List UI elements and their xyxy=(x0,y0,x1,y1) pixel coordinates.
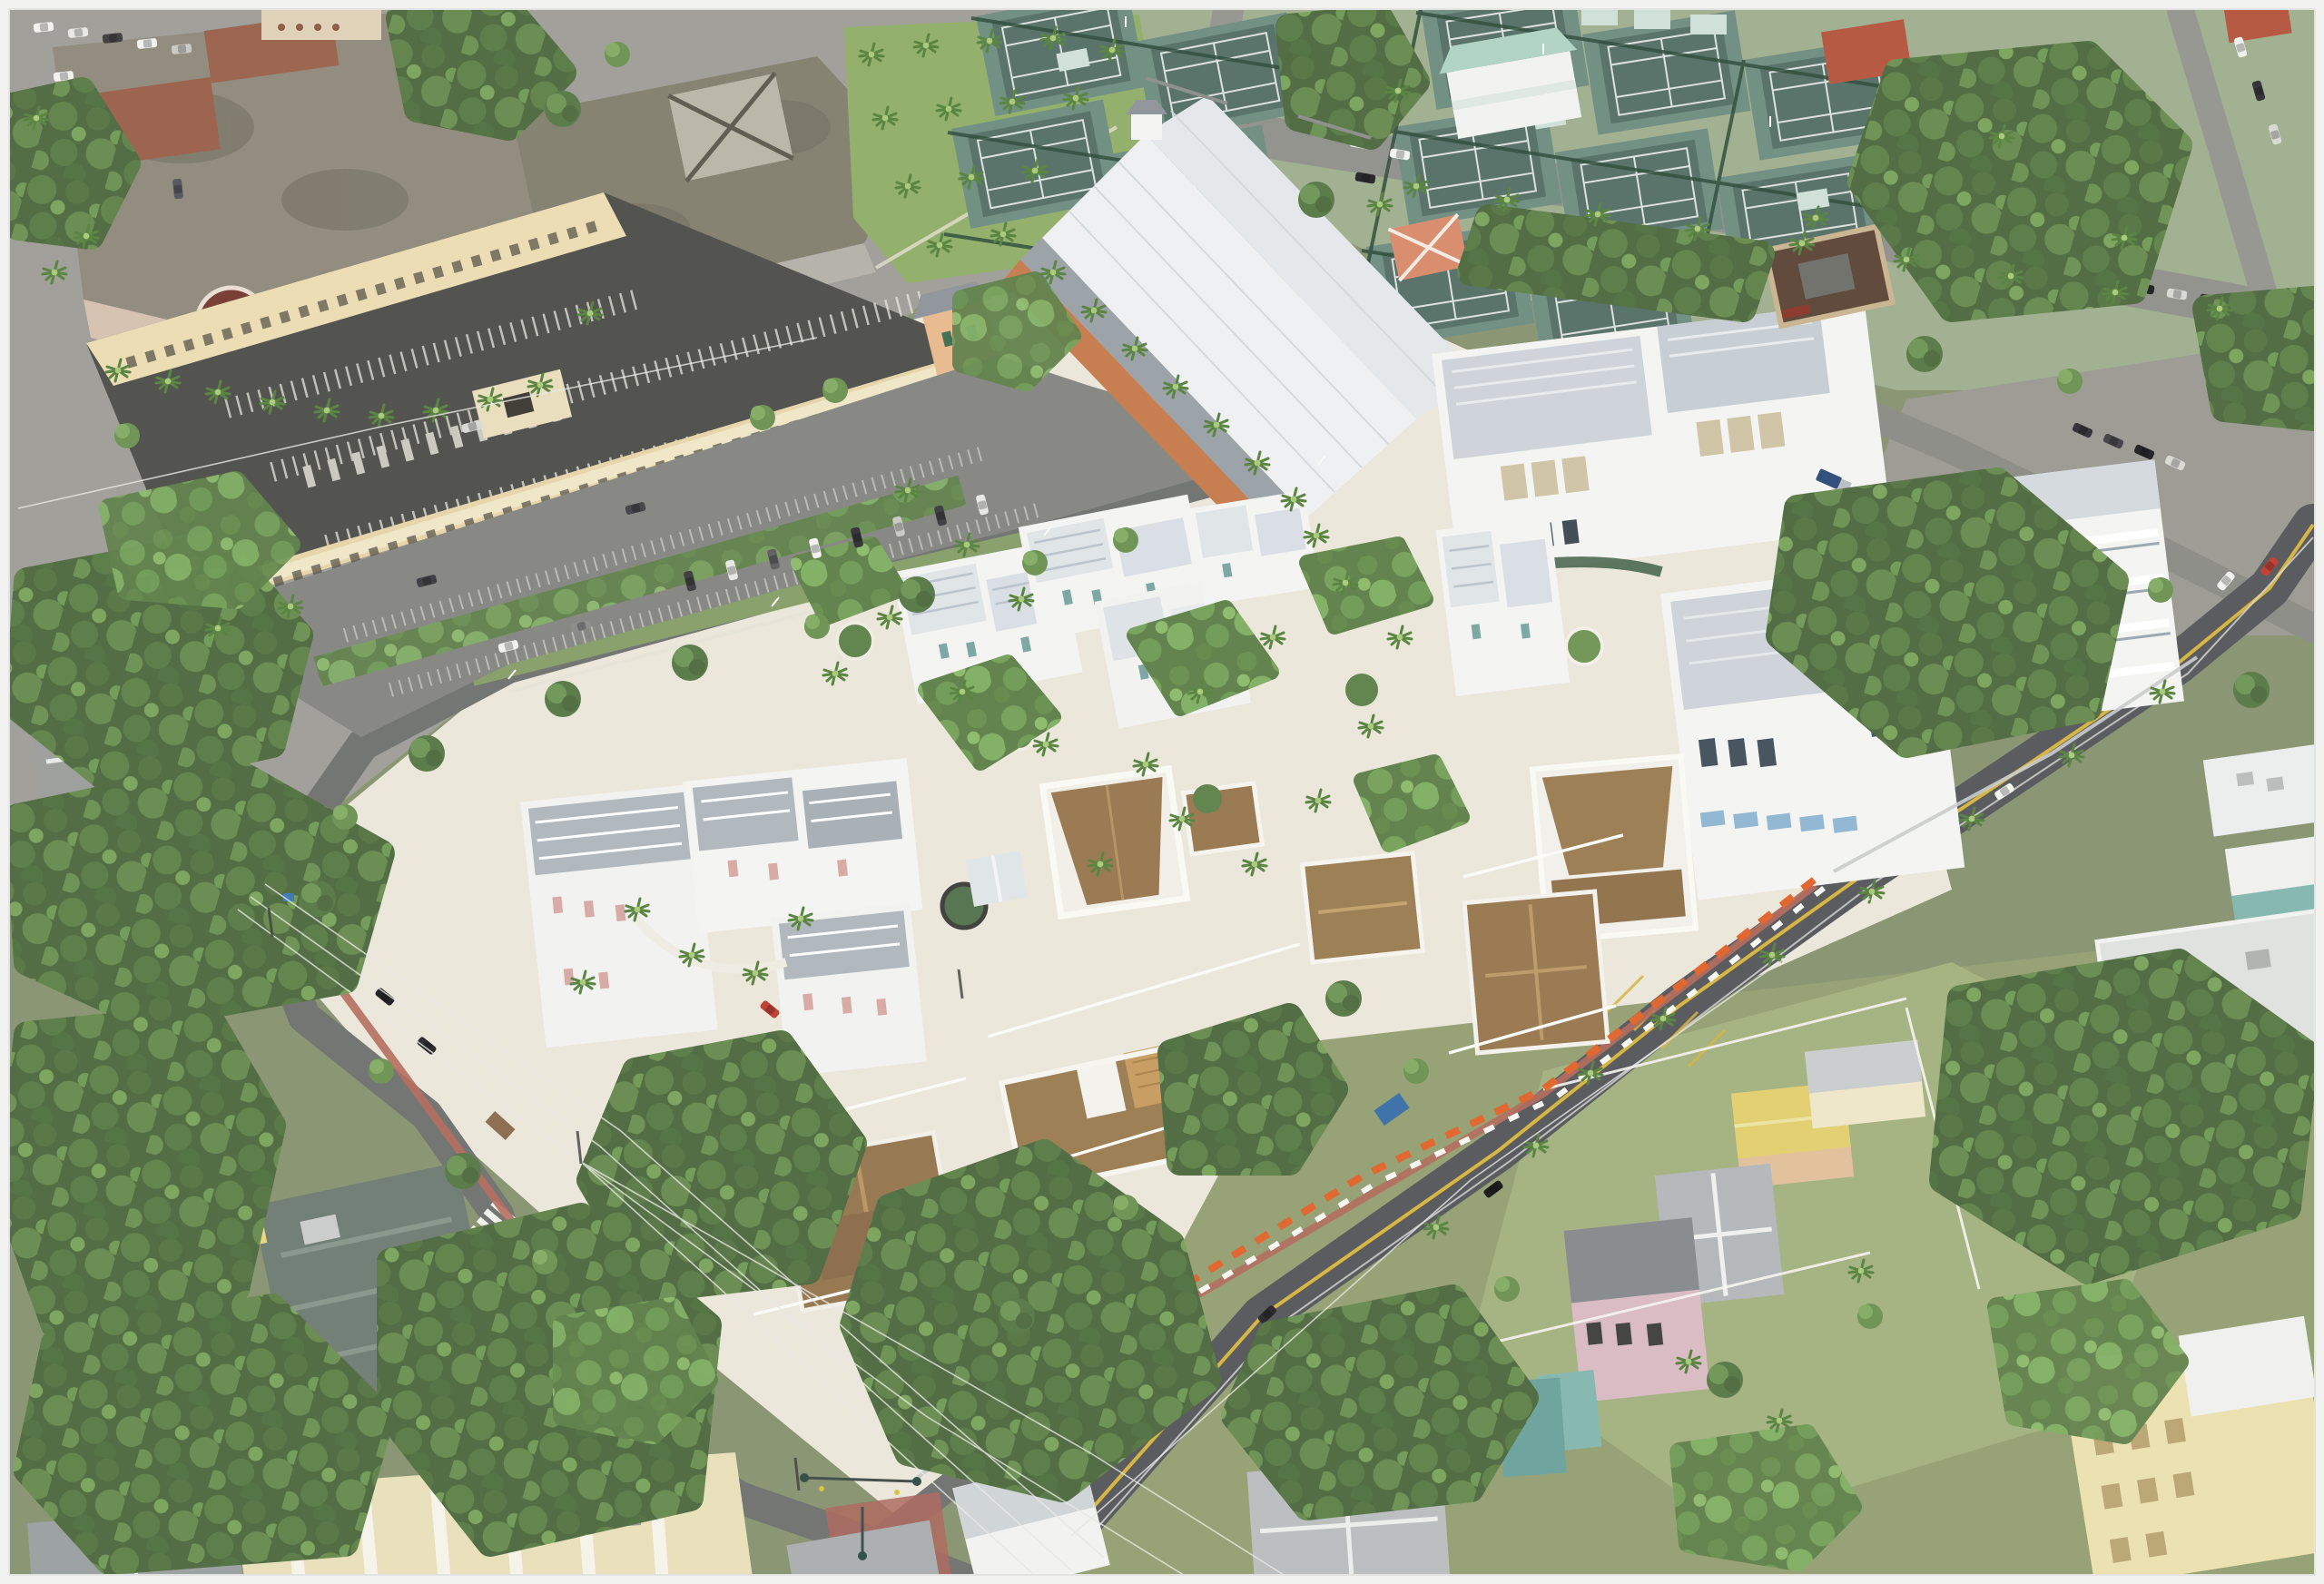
aerial-photo-canvas xyxy=(0,0,2324,1584)
aerial-photo xyxy=(0,0,2324,1584)
atmospheric-haze xyxy=(9,9,2315,1575)
photo-content xyxy=(0,0,2324,1584)
